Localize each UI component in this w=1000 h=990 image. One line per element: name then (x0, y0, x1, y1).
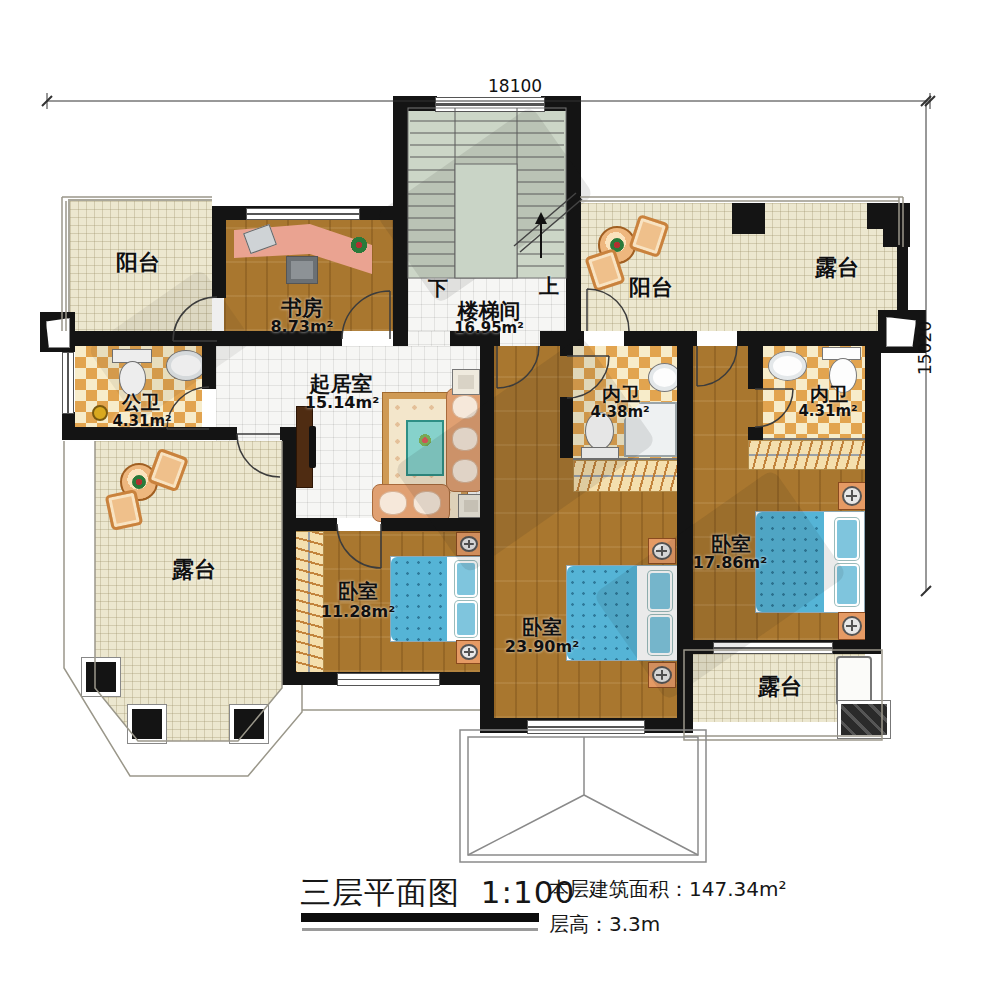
bay-window-left-glass (46, 318, 70, 348)
dimension-right: 15020 (915, 321, 935, 375)
nightstand (838, 482, 866, 510)
room-area-ensuite-right: 4.31m² (798, 404, 857, 419)
room-area-bedroom-small: 11.28m² (321, 604, 395, 620)
end-table-top (452, 369, 480, 395)
room-label-bedroom-large: 卧室 (522, 617, 562, 637)
floor-height-label: 层高： (549, 912, 609, 936)
column-block (883, 227, 910, 247)
room-label-bedroom-small: 卧室 (338, 581, 378, 601)
room-area-public-bath: 4.31m² (112, 414, 171, 429)
roof-outline (460, 730, 706, 862)
room-label-terrace-left: 露台 (172, 559, 216, 581)
floor-drain-icon (92, 405, 108, 421)
floor-area-value: 147.34m² (689, 877, 786, 901)
nightstand (838, 612, 866, 640)
window (337, 673, 440, 686)
wall-segment (566, 96, 581, 346)
desk-plant-icon (350, 236, 368, 254)
wall-segment (282, 531, 296, 685)
room-label-balcony-right: 阳台 (629, 277, 673, 299)
column-block (867, 203, 910, 229)
room-label-terrace-top-right: 露台 (815, 257, 859, 279)
floor-area-line: 本层建筑面积：147.34m² (549, 876, 786, 903)
bay-window-right-glass (886, 317, 916, 347)
wall-segment (212, 206, 226, 298)
planter-terrace-bottom-right (836, 656, 872, 706)
floor-area-label: 本层建筑面积： (549, 877, 689, 901)
terrace-column-hatched (838, 701, 890, 738)
hall-opening-floor (405, 331, 450, 346)
room-area-bedroom-large: 23.90m² (505, 639, 579, 655)
room-area-living: 15.14m² (305, 395, 379, 411)
room-area-stairwell: 16.95m² (454, 321, 524, 336)
room-label-ensuite-left: 内卫 (602, 385, 640, 404)
terrace-left-floor (60, 441, 310, 743)
floor-plan: 18100 15020 阳台 书房 8.73m² 下 上 楼梯间 16.95m²… (0, 0, 1000, 990)
room-area-study: 8.73m² (270, 319, 333, 335)
wall-segment (737, 331, 881, 346)
room-area-bedroom-right: 17.86m² (693, 555, 767, 571)
plan-title: 三层平面图 1:100 (300, 872, 575, 914)
wardrobe-bedroom-small (294, 531, 324, 674)
room-label-terrace-bottom-right: 露台 (758, 676, 802, 698)
floor-height-line: 层高：3.3m (549, 911, 660, 938)
wall-segment (624, 331, 697, 346)
wall-segment (865, 331, 881, 654)
dimension-top: 18100 (488, 76, 542, 96)
title-underline-thin (302, 928, 538, 931)
plan-title-text: 三层平面图 (300, 874, 460, 910)
wall-segment (748, 346, 763, 389)
room-label-living: 起居室 (310, 374, 373, 395)
floor-height-value: 3.3m (609, 912, 660, 936)
stair-down-label: 下 (428, 278, 448, 298)
window (527, 720, 645, 734)
wall-segment (282, 427, 296, 531)
desk-monitor (286, 256, 318, 284)
terrace-column (82, 658, 120, 696)
terrace-column (230, 705, 268, 743)
column-block (732, 203, 765, 234)
wall-segment (897, 245, 908, 313)
sink-ensuite-right (768, 351, 807, 381)
tv-icon (309, 426, 316, 468)
wardrobe-bedroom-right (748, 440, 867, 470)
window (246, 208, 360, 220)
room-label-bedroom-right: 卧室 (711, 534, 751, 554)
room-label-balcony-left: 阳台 (116, 252, 160, 274)
window (62, 352, 74, 414)
room-area-ensuite-left: 4.38m² (590, 405, 649, 420)
wall-segment (282, 518, 337, 531)
terrace-column (128, 705, 166, 743)
wall-segment (748, 427, 763, 440)
title-underline-thick (301, 913, 539, 922)
room-label-study: 书房 (281, 298, 323, 319)
nightstand (456, 640, 482, 664)
stair-up-label: 上 (539, 276, 559, 296)
room-label-public-bath: 公卫 (122, 393, 160, 412)
